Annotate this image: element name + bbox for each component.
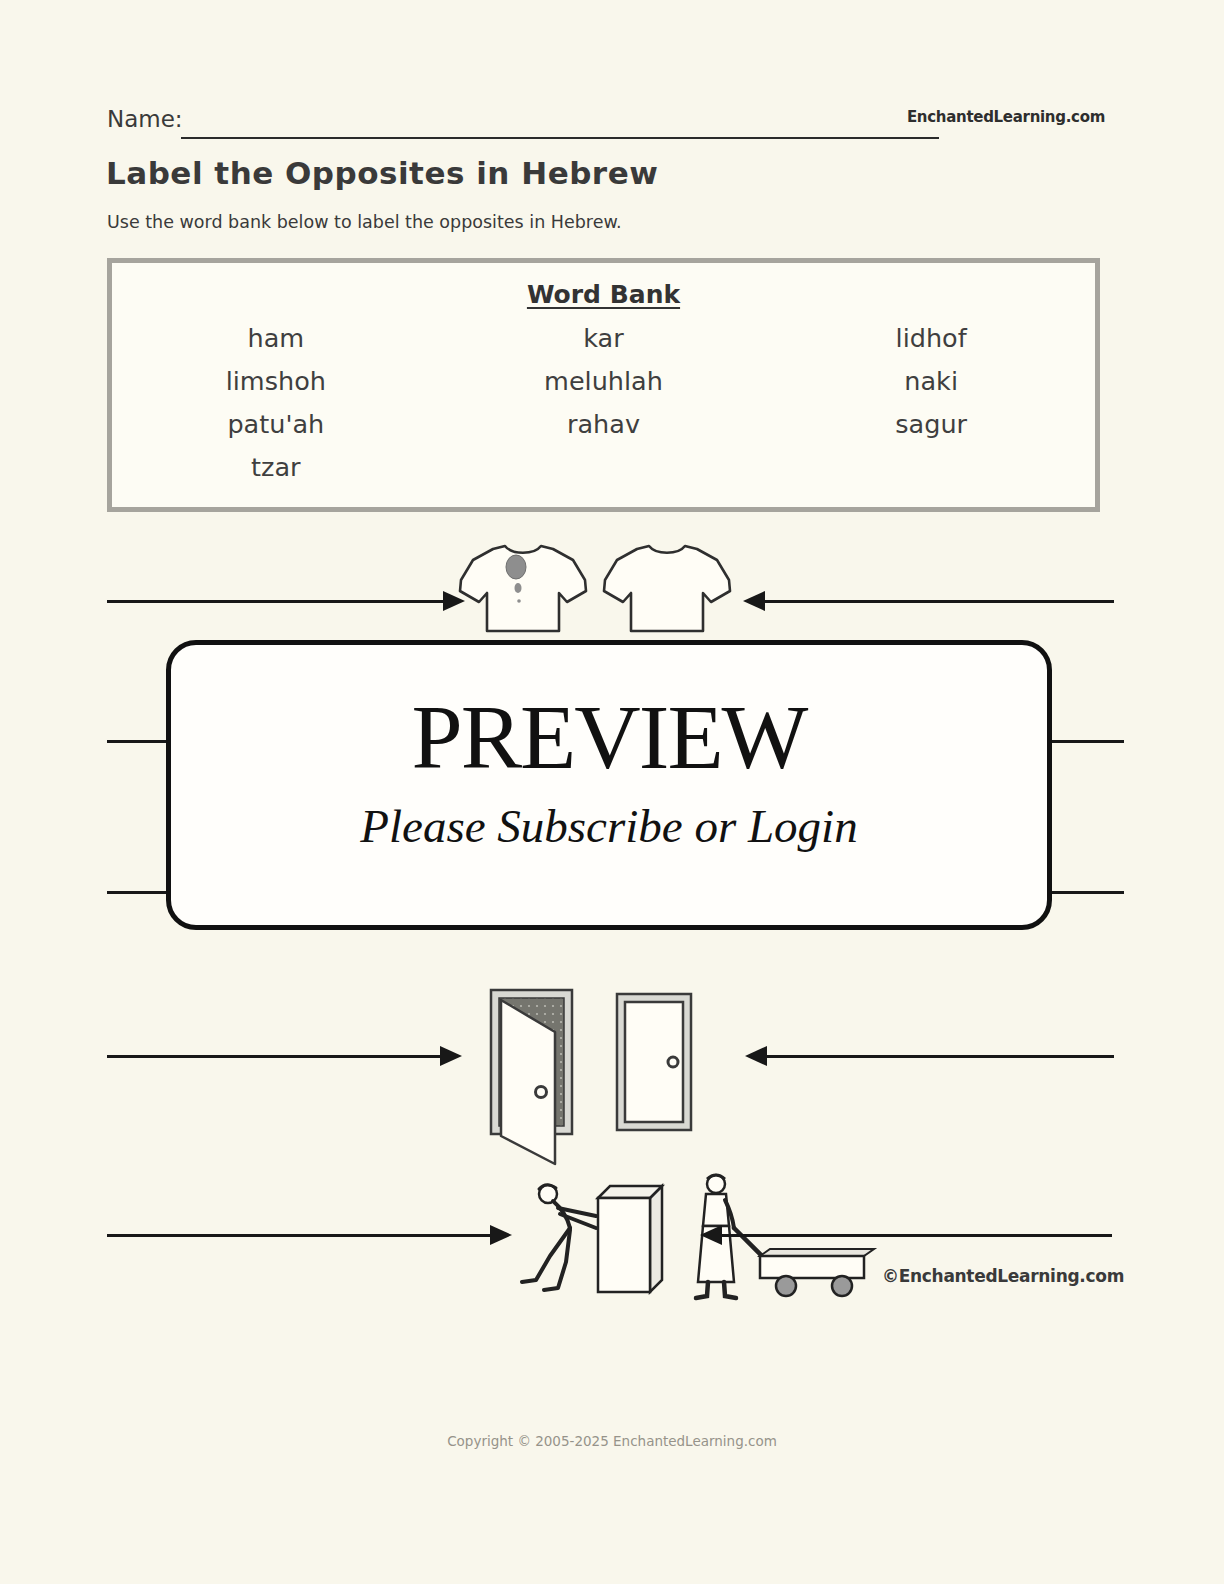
word-item-limshoh: limshoh bbox=[112, 366, 440, 396]
answer-line-doors-left[interactable] bbox=[107, 1055, 440, 1058]
answer-line-2-left[interactable] bbox=[107, 740, 167, 743]
wagon-icon bbox=[760, 1249, 874, 1296]
dirty-shirt-icon bbox=[460, 546, 586, 631]
box-icon bbox=[598, 1186, 662, 1292]
answer-line-pushpull-right[interactable] bbox=[722, 1234, 1112, 1237]
word-bank-box: Word Bank ham kar lidhof limshoh meluhla… bbox=[107, 258, 1100, 512]
word-item-tzar: tzar bbox=[112, 452, 440, 482]
worksheet-title: Label the Opposites in Hebrew bbox=[106, 155, 658, 191]
arrow-left-icon-pushpull bbox=[700, 1225, 722, 1245]
open-door-icon bbox=[491, 990, 572, 1164]
preview-subscribe-login-text[interactable]: Please Subscribe or Login bbox=[171, 799, 1047, 853]
doors-illustration bbox=[487, 988, 703, 1168]
word-item-kar: kar bbox=[440, 323, 768, 353]
worksheet-instructions: Use the word bank below to label the opp… bbox=[107, 212, 622, 232]
preview-overlay: PREVIEW Please Subscribe or Login bbox=[166, 640, 1052, 930]
answer-line-doors-right[interactable] bbox=[767, 1055, 1114, 1058]
answer-line-shirts-right[interactable] bbox=[765, 600, 1114, 603]
word-item-sagur: sagur bbox=[767, 409, 1095, 439]
person-pushing-box-icon bbox=[522, 1185, 596, 1290]
site-logo-text: EnchantedLearning.com bbox=[907, 108, 1105, 126]
clean-shirt-icon bbox=[604, 546, 730, 631]
answer-line-3-right[interactable] bbox=[1052, 891, 1124, 894]
preview-title: PREVIEW bbox=[171, 689, 1047, 785]
word-item-naki: naki bbox=[767, 366, 1095, 396]
answer-line-shirts-left[interactable] bbox=[107, 600, 443, 603]
word-item-lidhof: lidhof bbox=[767, 323, 1095, 353]
word-item-patuah: patu'ah bbox=[112, 409, 440, 439]
worksheet-page: Name: EnchantedLearning.com Label the Op… bbox=[0, 0, 1224, 1584]
answer-line-2-right[interactable] bbox=[1052, 740, 1124, 743]
shirts-illustration bbox=[458, 540, 736, 637]
word-item-ham: ham bbox=[112, 323, 440, 353]
closed-door-icon bbox=[617, 994, 691, 1130]
illustration-credit: ©EnchantedLearning.com bbox=[882, 1266, 1124, 1286]
word-item-meluhlah: meluhlah bbox=[440, 366, 768, 396]
arrow-left-icon-doors bbox=[745, 1046, 767, 1066]
word-bank-title: Word Bank bbox=[112, 280, 1095, 309]
word-item-rahav: rahav bbox=[440, 409, 768, 439]
answer-line-pushpull-left[interactable] bbox=[107, 1234, 490, 1237]
arrow-right-icon-doors bbox=[440, 1046, 462, 1066]
name-label: Name: bbox=[107, 106, 183, 132]
arrow-left-icon-shirts bbox=[743, 591, 765, 611]
footer-copyright: Copyright © 2005-2025 EnchantedLearning.… bbox=[0, 1433, 1224, 1449]
word-bank-grid: ham kar lidhof limshoh meluhlah naki pat… bbox=[112, 323, 1095, 482]
name-blank-line[interactable] bbox=[181, 116, 939, 139]
answer-line-3-left[interactable] bbox=[107, 891, 167, 894]
